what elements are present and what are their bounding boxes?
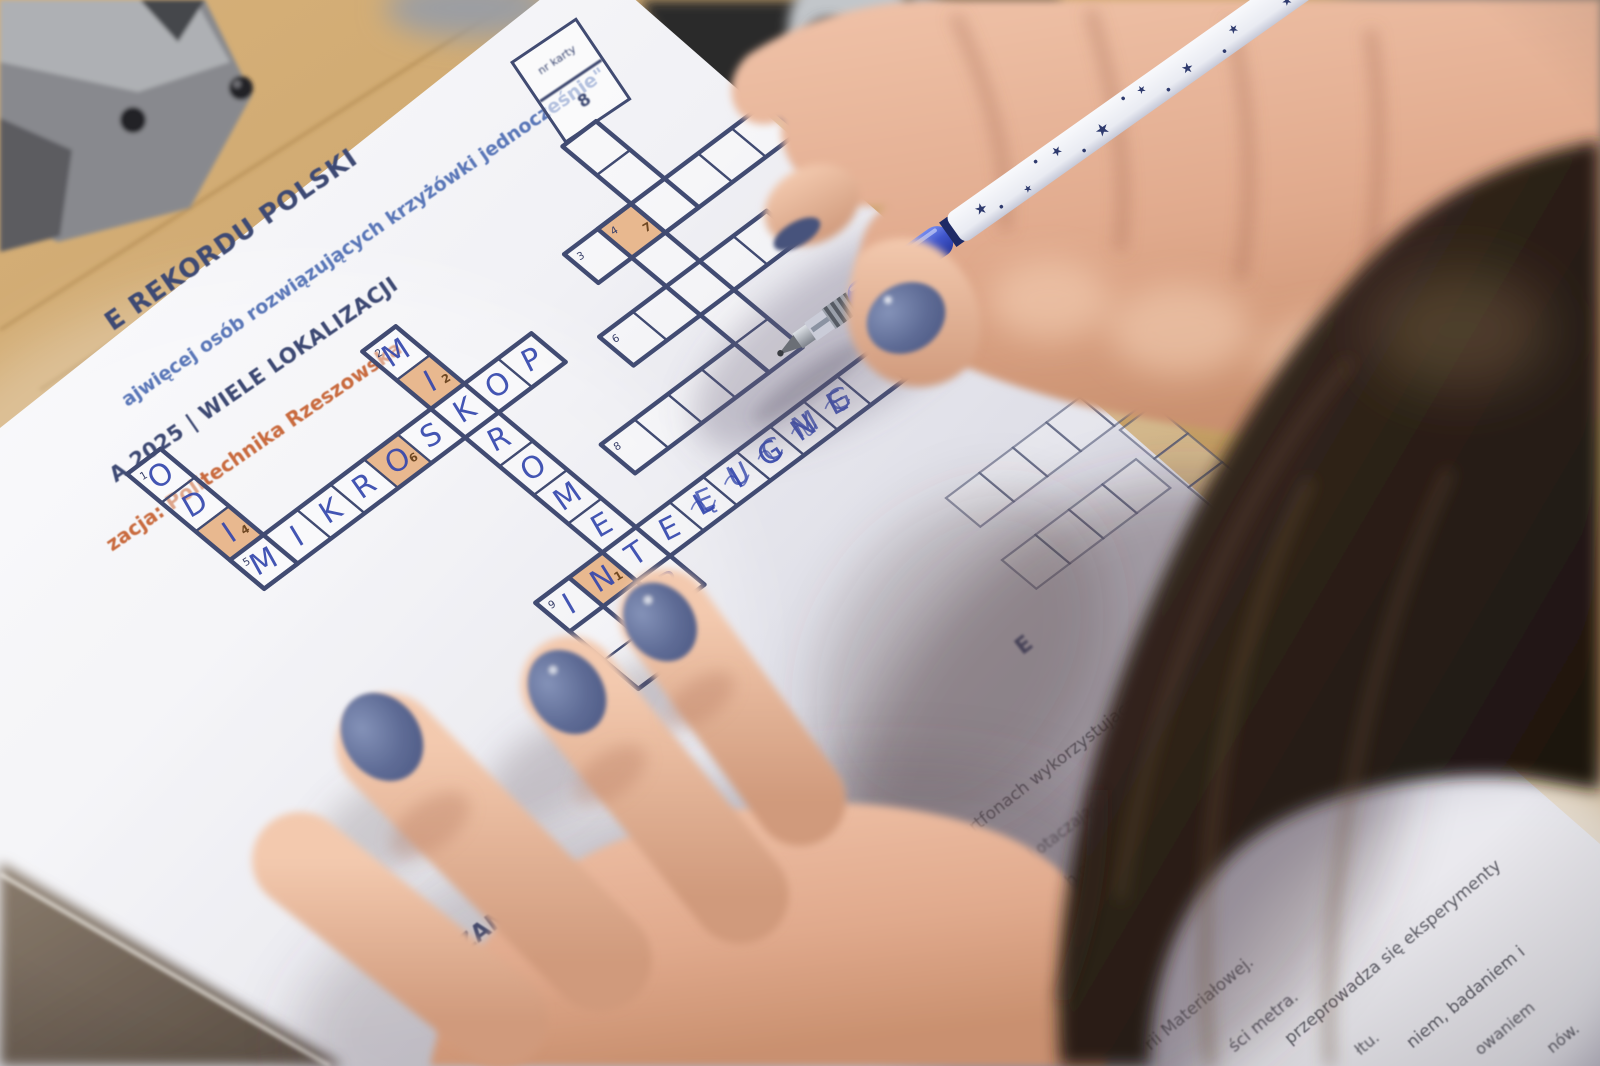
foreground-layer: ★ ★★ ★★ ★ ★★ [0, 0, 1600, 1066]
vignette [0, 0, 1600, 1066]
photo-crossword-scene: E REKORDU POLSKI ajwięcej osób rozwiązuj… [0, 0, 1600, 1066]
